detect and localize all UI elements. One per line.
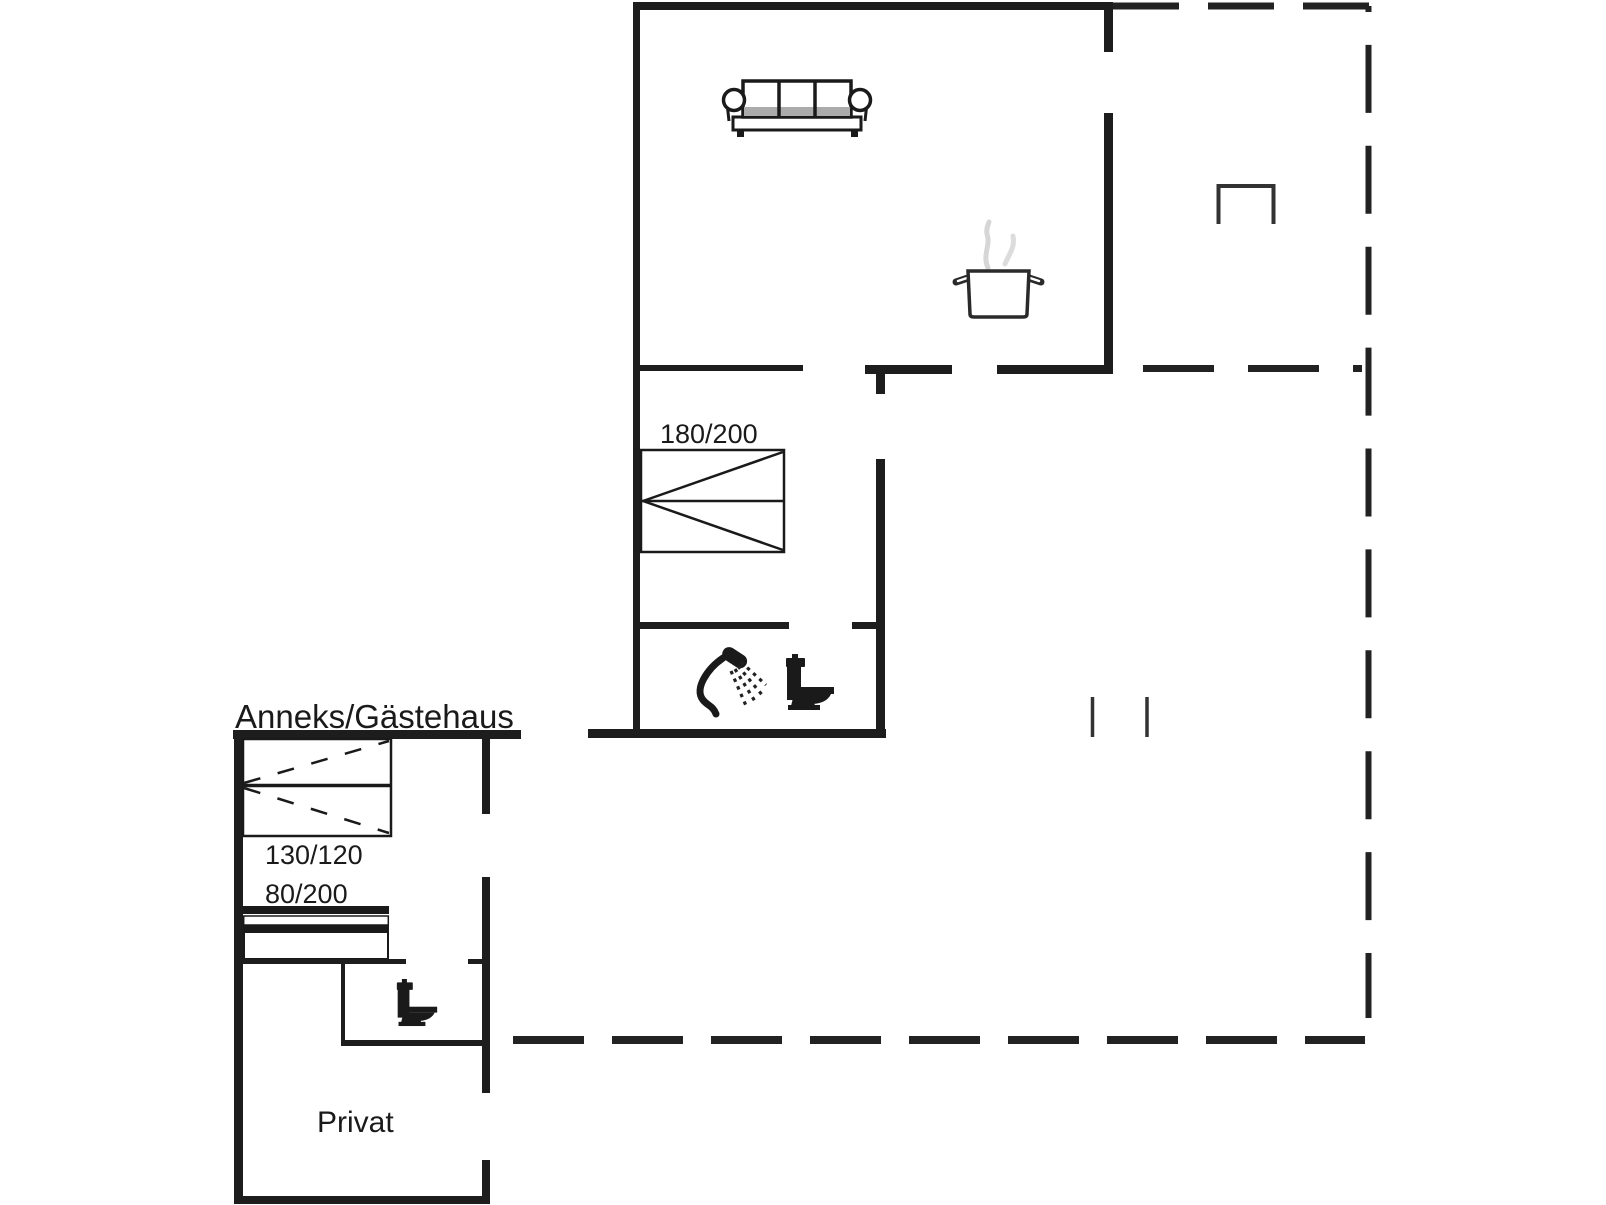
svg-text:130/120: 130/120 — [265, 840, 363, 870]
svg-text:180/200: 180/200 — [660, 419, 758, 449]
svg-text:Privat: Privat — [317, 1106, 394, 1139]
svg-text:Anneks/Gästehaus: Anneks/Gästehaus — [235, 698, 514, 735]
svg-text:80/200: 80/200 — [265, 879, 348, 909]
